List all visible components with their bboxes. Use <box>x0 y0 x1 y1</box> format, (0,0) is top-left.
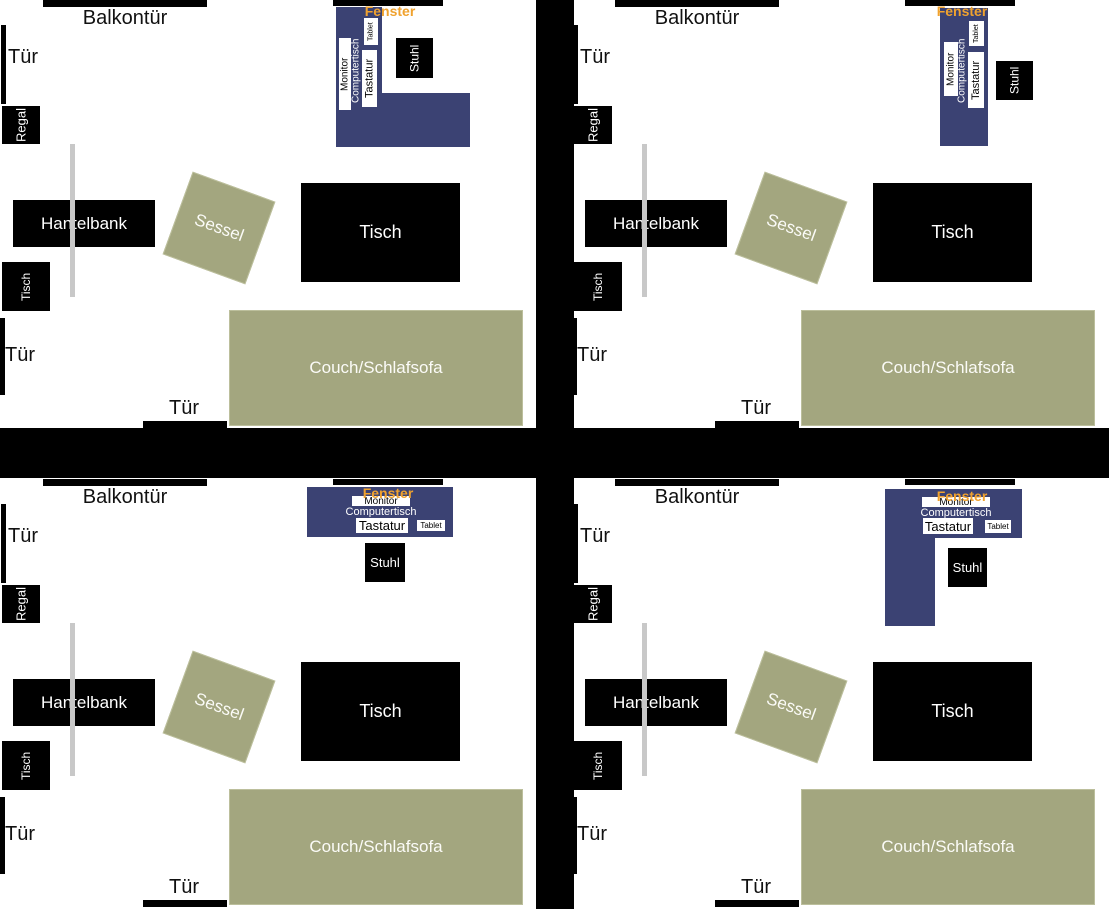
computer-desk-label: Computertisch <box>350 26 362 116</box>
left-door-wall-segment <box>1 25 6 104</box>
balcony-door-wall-segment <box>615 479 779 486</box>
connector-line <box>70 623 75 776</box>
bottom-door-wall-segment <box>715 900 799 907</box>
left-door-wall-segment <box>573 504 578 583</box>
chair-box: Stuhl <box>996 61 1033 100</box>
door-label-upper: Tür <box>580 46 610 68</box>
small-table-box: Tisch <box>2 262 50 311</box>
door-label-lower: Tür <box>577 344 607 366</box>
table-box: Tisch <box>301 662 460 761</box>
computer-desk-label: Computertisch <box>345 506 417 517</box>
door-label-upper: Tür <box>8 525 38 547</box>
chair-box: Stuhl <box>396 38 433 78</box>
window-label: Fenster <box>352 3 428 19</box>
balcony-door-wall-segment <box>43 0 207 7</box>
keyboard-label: Tastatur <box>356 518 408 533</box>
chair-box: Stuhl <box>948 548 987 587</box>
computer-desk-label: Computertisch <box>918 507 994 518</box>
balcony-door-label: Balkontür <box>617 486 777 508</box>
bottom-door-wall-segment <box>143 421 227 428</box>
balcony-door-label: Balkontür <box>45 486 205 508</box>
left-door-wall-segment <box>1 504 6 583</box>
weight-bench-box: Hantelbank <box>13 679 155 726</box>
door-label-upper: Tür <box>8 46 38 68</box>
door-label-bottom: Tür <box>144 397 224 419</box>
small-table-box: Tisch <box>574 262 622 311</box>
balcony-door-label: Balkontür <box>45 7 205 29</box>
balcony-door-label: Balkontür <box>617 7 777 29</box>
left-door-wall-segment <box>573 25 578 104</box>
shelf-box: Regal <box>2 106 40 144</box>
weight-bench-box: Hantelbank <box>585 679 727 726</box>
keyboard-label: Tastatur <box>923 518 973 534</box>
quadrant-top-left: Balkontür Fenster Tür Regal Hantelbank S… <box>0 0 537 431</box>
weight-bench-box: Hantelbank <box>13 200 155 247</box>
tablet-label: Tablet <box>364 18 378 45</box>
keyboard-label: Tastatur <box>362 50 377 107</box>
weight-bench-box: Hantelbank <box>585 200 727 247</box>
quadrant-top-right: Balkontür Fenster Tür Regal Hantelbank S… <box>572 0 1109 431</box>
couch-box: Couch/Schlafsofa <box>801 310 1095 426</box>
couch-box: Couch/Schlafsofa <box>229 789 523 905</box>
computer-desk-label: Computertisch <box>956 30 968 112</box>
couch-box: Couch/Schlafsofa <box>801 789 1095 905</box>
door-label-lower: Tür <box>577 823 607 845</box>
door-label-lower: Tür <box>5 823 35 845</box>
tablet-label: Tablet <box>417 520 445 531</box>
shelf-box: Regal <box>574 106 612 144</box>
tablet-label: Tablet <box>969 21 984 46</box>
door-label-bottom: Tür <box>716 876 796 898</box>
window-wall-segment <box>905 479 1015 485</box>
central-horizontal-wall <box>0 428 1109 478</box>
tablet-label: Tablet <box>985 520 1011 533</box>
table-box: Tisch <box>873 662 1032 761</box>
small-table-box: Tisch <box>2 741 50 790</box>
computer-desk-extension <box>381 93 470 147</box>
armchair-box: Sessel <box>735 651 848 764</box>
window-label: Fenster <box>350 485 426 501</box>
armchair-box: Sessel <box>163 651 276 764</box>
window-label: Fenster <box>924 488 1000 504</box>
couch-box: Couch/Schlafsofa <box>229 310 523 426</box>
balcony-door-wall-segment <box>615 0 779 7</box>
balcony-door-wall-segment <box>43 479 207 486</box>
quadrant-bottom-left: Balkontür Fenster Tür Regal Hantelbank S… <box>0 479 537 909</box>
shelf-box: Regal <box>2 585 40 623</box>
connector-line <box>642 623 647 776</box>
door-label-upper: Tür <box>580 525 610 547</box>
chair-box: Stuhl <box>365 543 405 582</box>
small-table-box: Tisch <box>574 741 622 790</box>
door-label-lower: Tür <box>5 344 35 366</box>
bottom-door-wall-segment <box>143 900 227 907</box>
armchair-box: Sessel <box>735 172 848 285</box>
window-label: Fenster <box>924 3 1000 19</box>
table-box: Tisch <box>873 183 1032 282</box>
shelf-box: Regal <box>574 585 612 623</box>
armchair-box: Sessel <box>163 172 276 285</box>
connector-line <box>70 144 75 297</box>
table-box: Tisch <box>301 183 460 282</box>
quadrant-bottom-right: Balkontür Fenster Tür Regal Hantelbank S… <box>572 479 1109 909</box>
keyboard-label: Tastatur <box>968 52 984 108</box>
floor-plan-canvas: Balkontür Fenster Tür Regal Hantelbank S… <box>0 0 1109 909</box>
bottom-door-wall-segment <box>715 421 799 428</box>
door-label-bottom: Tür <box>144 876 224 898</box>
door-label-bottom: Tür <box>716 397 796 419</box>
connector-line <box>642 144 647 297</box>
